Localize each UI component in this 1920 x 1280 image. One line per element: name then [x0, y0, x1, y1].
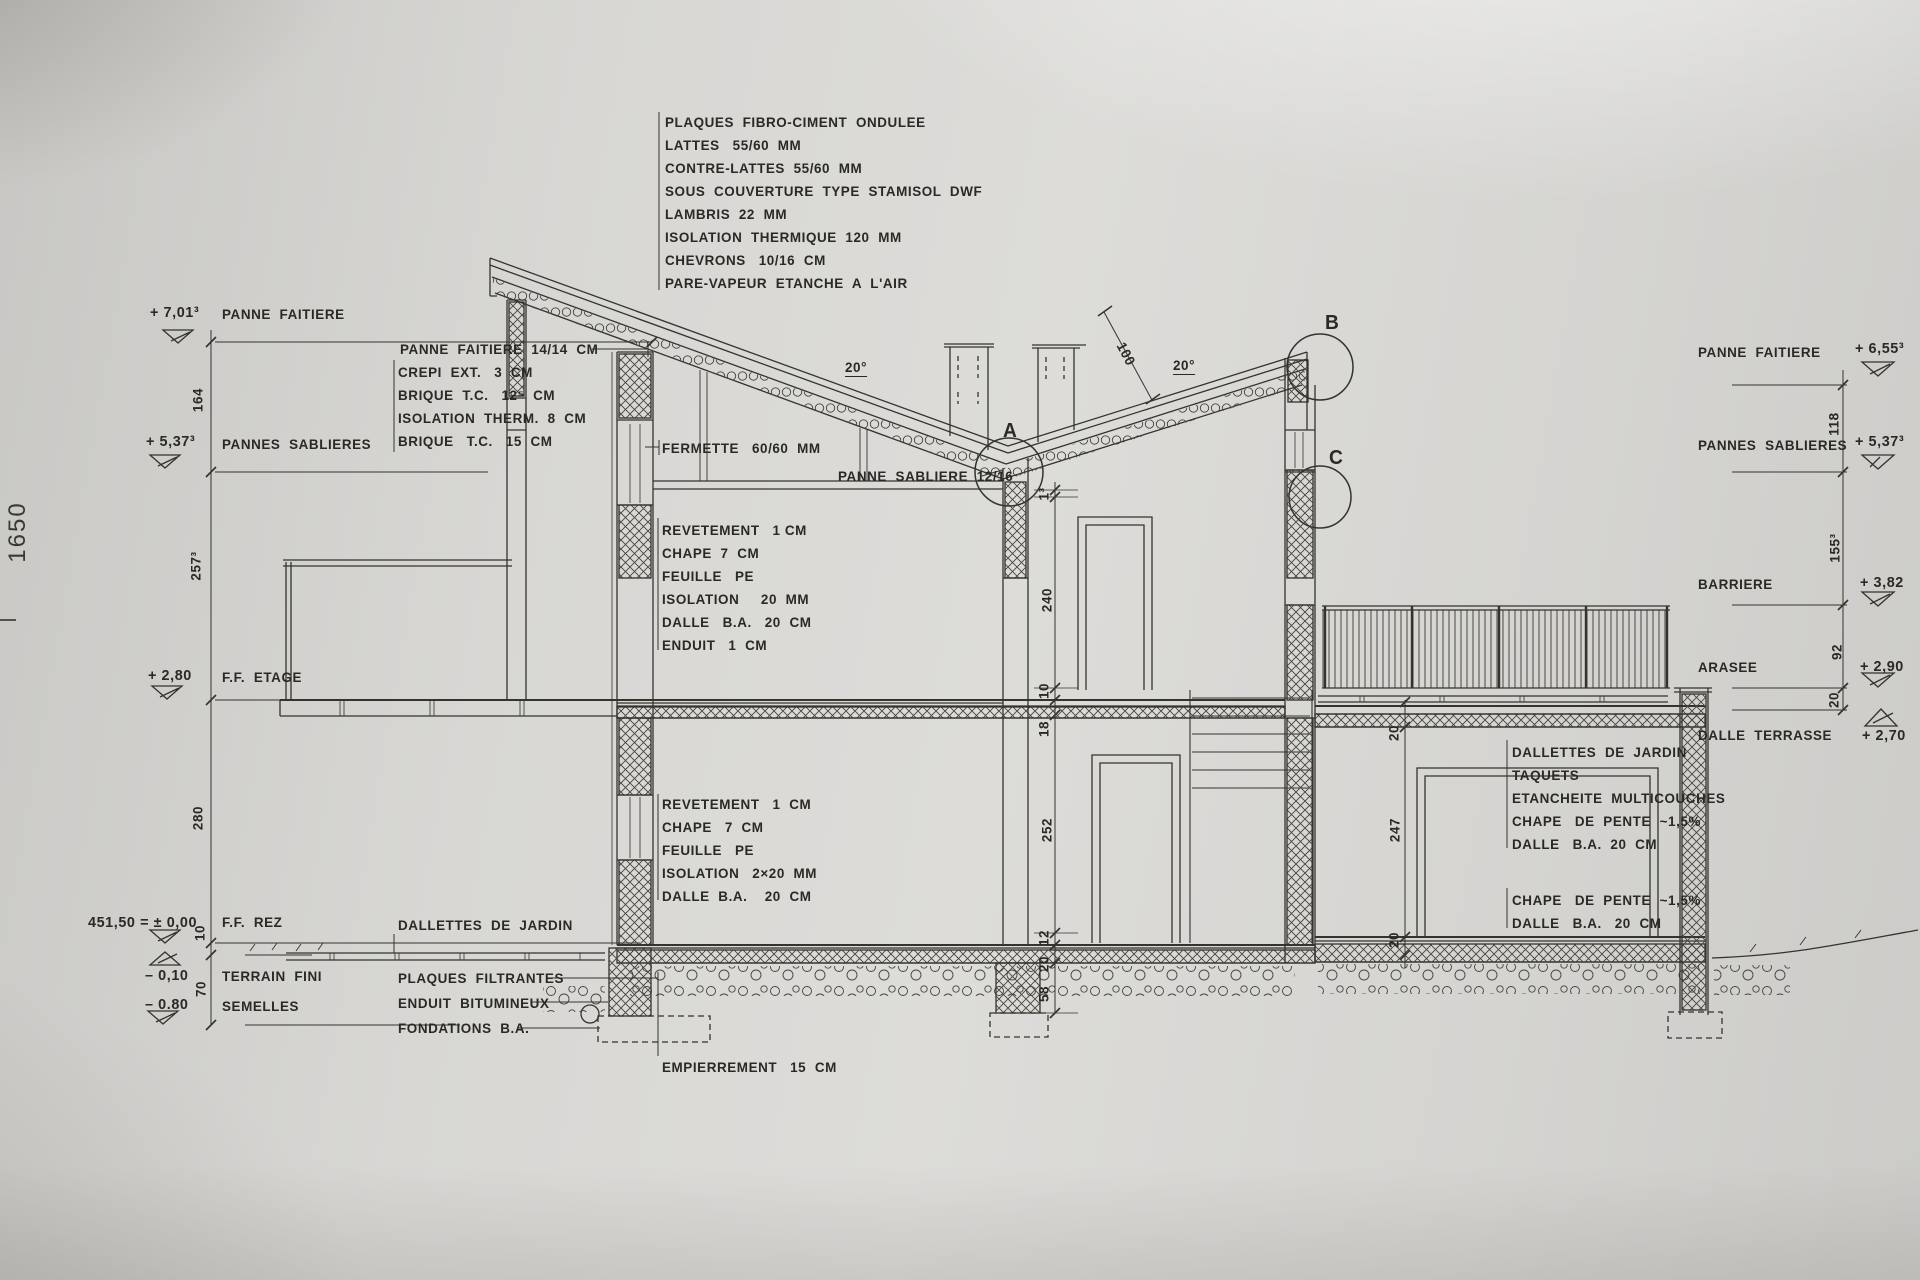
wall-assembly-line: CREPI EXT. 3 CM [398, 365, 533, 380]
rez-floor-line: CHAPE 7 CM [662, 820, 764, 835]
detail-b-label: B [1325, 313, 1339, 334]
level-value: – 0,10 [145, 968, 189, 984]
dim-label: 1³ [1037, 487, 1052, 500]
terrace-slab-line: CHAPE DE PENTE ~1,5% [1512, 893, 1701, 908]
dim-label: 58 [1037, 986, 1052, 1002]
level-label: PANNE FAITIERE [1698, 345, 1821, 360]
roof-assembly-line: LATTES 55/60 MM [665, 138, 801, 153]
terrace-assembly-line: DALLE B.A. 20 CM [1512, 837, 1657, 852]
etage-floor-line: ISOLATION 20 MM [662, 592, 809, 607]
level-label: PANNES SABLIERES [222, 437, 371, 452]
level-value: + 6,55³ [1855, 341, 1904, 357]
valley-wall-group [1003, 458, 1028, 945]
fondations-label: FONDATIONS B.A. [398, 1021, 529, 1036]
level-value: + 5,37³ [1855, 434, 1904, 450]
level-label: PANNE FAITIERE [222, 307, 345, 322]
fermette-label: FERMETTE 60/60 MM [662, 441, 821, 456]
level-label: SEMELLES [222, 999, 299, 1014]
dim-label: 164 [191, 388, 206, 412]
dim-label: 240 [1040, 588, 1055, 612]
dim-label: 155³ [1828, 533, 1843, 562]
dim-label: 118 [1827, 412, 1842, 435]
level-value: – 0.80 [145, 997, 189, 1013]
dim-label: 92 [1830, 644, 1845, 660]
dim-label: 20 [1827, 692, 1842, 708]
rez-floor-line: REVETEMENT 1 CM [662, 797, 811, 812]
level-label: PANNES SABLIERES [1698, 438, 1847, 453]
dallettes-jardin-label: DALLETTES DE JARDIN [398, 918, 573, 933]
roof-assembly-line: CONTRE-LATTES 55/60 MM [665, 161, 862, 176]
dim-label: 10 [193, 925, 208, 941]
etage-floor-line: REVETEMENT 1 CM [662, 523, 807, 538]
left-wall-group [612, 352, 653, 945]
level-value: 451,50 = ± 0,00 [88, 915, 197, 931]
dim-label: 18 [1037, 721, 1052, 737]
level-label: DALLE TERRASSE [1698, 728, 1832, 743]
dim-label: 252 [1040, 818, 1055, 842]
balcony-group [280, 560, 617, 716]
dim-label: 20 [1037, 956, 1052, 972]
detail-c-label: C [1329, 448, 1343, 469]
empierrement-label: EMPIERREMENT 15 CM [662, 1060, 837, 1075]
level-value: + 2,70 [1862, 728, 1906, 744]
wall-assembly-line: BRIQUE T.C. 12⁵ CM [398, 388, 555, 403]
level-value: + 2,90 [1860, 659, 1904, 675]
level-label: BARRIERE [1698, 577, 1773, 592]
panne-sabliere-label: PANNE SABLIERE 12/16 [838, 469, 1013, 484]
terrace-assembly-line: TAQUETS [1512, 768, 1579, 783]
etage-floor-line: FEUILLE PE [662, 569, 754, 584]
level-value: + 5,37³ [146, 434, 195, 450]
blueprint-sheet: 1650 PLAQUES FIBRO-CIMENT ONDULEE LATTES… [0, 0, 1920, 1280]
dim-label: 20 [1387, 725, 1402, 741]
roof-assembly-line: ISOLATION THERMIQUE 120 MM [665, 230, 902, 245]
terrace-slab-line: DALLE B.A. 20 CM [1512, 916, 1662, 931]
level-label: F.F. REZ [222, 915, 282, 930]
wall-assembly-line: ISOLATION THERM. 8 CM [398, 411, 586, 426]
dim-label: 257³ [189, 551, 204, 580]
rez-floor-line: ISOLATION 2×20 MM [662, 866, 817, 881]
dim-label: 12 [1037, 930, 1052, 946]
enduit-bitumineux-label: ENDUIT BITUMINEUX [398, 996, 550, 1011]
terrace-assembly-line: CHAPE DE PENTE ~1,5% [1512, 814, 1701, 829]
dim-label: 70 [194, 981, 209, 997]
dim-label: 10 [1037, 683, 1052, 699]
level-value: + 2,80 [148, 668, 192, 684]
level-label: F.F. ETAGE [222, 670, 302, 685]
dim-label: 280 [191, 806, 206, 830]
wall-assembly-title: PANNE FAITIERE 14/14 CM [400, 342, 598, 357]
detail-a-label: A [1003, 421, 1017, 442]
sheet-number: 1650 [6, 501, 30, 562]
etage-floor-line: DALLE B.A. 20 CM [662, 615, 812, 630]
level-label: TERRAIN FINI [222, 969, 322, 984]
level-label: ARASEE [1698, 660, 1757, 675]
roof-assembly-line: PLAQUES FIBRO-CIMENT ONDULEE [665, 115, 926, 130]
terrace-assembly-line: ETANCHEITE MULTICOUCHES [1512, 791, 1725, 806]
rez-floor-line: FEUILLE PE [662, 843, 754, 858]
terrace-assembly-line: DALLETTES DE JARDIN [1512, 745, 1687, 760]
level-value: + 3,82 [1860, 575, 1904, 591]
right-wall-group [1285, 358, 1315, 963]
roof-angle-right-label: 20° [1173, 358, 1195, 375]
wall-assembly-line: BRIQUE T.C. 15 CM [398, 434, 553, 449]
roof-assembly-line: LAMBRIS 22 MM [665, 207, 787, 222]
roof-assembly-line: PARE-VAPEUR ETANCHE A L'AIR [665, 276, 908, 291]
rez-floor-line: DALLE B.A. 20 CM [662, 889, 812, 904]
roof-angle-left-label: 20° [845, 360, 867, 377]
dim-label: 20 [1387, 932, 1402, 948]
dim-label: 247 [1388, 818, 1403, 842]
etage-floor-line: CHAPE 7 CM [662, 546, 759, 561]
etage-floor-line: ENDUIT 1 CM [662, 638, 767, 653]
roof-assembly-line: CHEVRONS 10/16 CM [665, 253, 826, 268]
roof-assembly-line: SOUS COUVERTURE TYPE STAMISOL DWF [665, 184, 982, 199]
plaques-filtrantes-label: PLAQUES FILTRANTES [398, 971, 564, 986]
level-value: + 7,01³ [150, 305, 199, 321]
